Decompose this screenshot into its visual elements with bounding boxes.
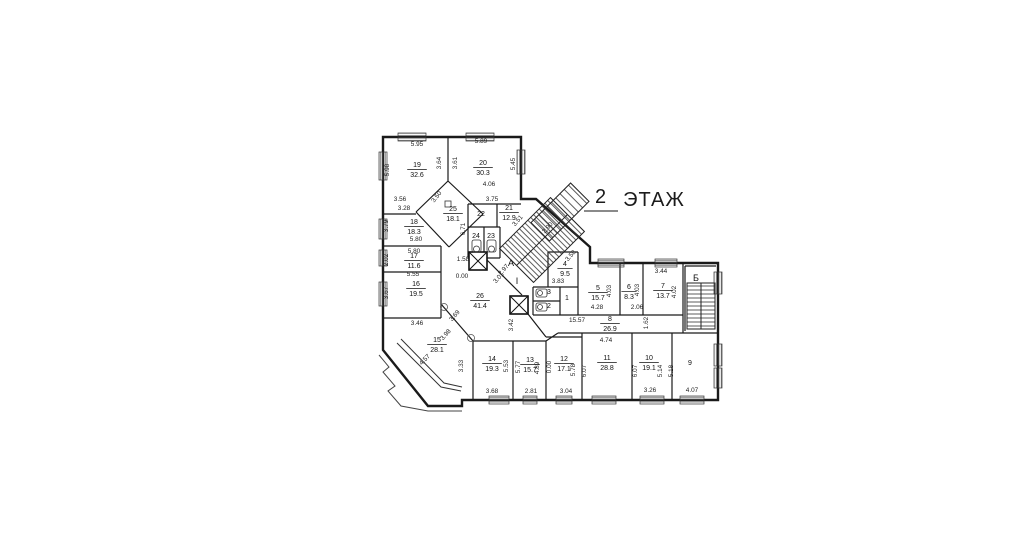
elevator-1-icon	[469, 252, 487, 270]
room-number: 13	[526, 357, 534, 364]
window-mark	[517, 150, 525, 174]
room-number: 23	[487, 233, 495, 240]
room-number: 11	[603, 355, 610, 362]
dimension-label: 15.57	[569, 317, 585, 324]
room-number: 6	[627, 284, 631, 291]
room-area: 41.4	[473, 303, 487, 310]
dimension-label: 5.80	[408, 248, 421, 255]
dimension-label: 1.62	[643, 316, 650, 329]
window-mark	[592, 396, 616, 404]
dimension-label: 4.03	[606, 284, 613, 297]
dimension-label: 4.03	[634, 283, 641, 296]
dimension-label: 5.78	[570, 363, 577, 376]
room-number: 7	[661, 283, 665, 290]
room-area: 19.1	[642, 365, 656, 372]
window-mark	[714, 368, 722, 388]
floor-plan-page: 1932.62030.32518.1222112.924231818.31711…	[0, 0, 1023, 541]
dimension-label: 3.26	[644, 387, 657, 394]
window-mark	[598, 259, 624, 267]
window-mark	[655, 259, 677, 267]
room-area: 32.6	[410, 172, 424, 179]
dimension-label: 4.28	[591, 304, 604, 311]
window-mark	[556, 396, 572, 404]
room-area: 18.1	[446, 216, 460, 223]
room-number: 19	[413, 162, 421, 169]
room-number: 25	[449, 206, 457, 213]
window-mark	[680, 396, 704, 404]
room-area: 9.5	[560, 271, 570, 278]
dimension-label: 3.56	[394, 196, 407, 203]
room-number: 24	[472, 233, 480, 240]
dimension-label: 5.80	[410, 236, 423, 243]
axis-i-label: I	[516, 276, 519, 286]
room-number: 20	[479, 160, 487, 167]
room-number: 2	[547, 303, 551, 310]
room-number: 8	[608, 316, 612, 323]
window-mark	[489, 396, 509, 404]
room-label: 2	[547, 303, 551, 310]
room-number: 9	[688, 360, 692, 367]
dimension-label: 3.83	[552, 278, 565, 285]
dimension-label: 3.44	[655, 268, 668, 275]
room-label: 3	[547, 289, 551, 296]
dimension-label: 3.33	[458, 359, 465, 372]
dimension-label: 3.75	[486, 196, 499, 203]
room-label: 1	[565, 295, 569, 302]
room-label: 22	[477, 211, 485, 218]
dimension-label: 5.53	[503, 359, 510, 372]
dimension-label: 1.58	[457, 256, 470, 263]
room-area: 19.3	[485, 366, 499, 373]
floor-title: 2 ЭТАЖ	[584, 186, 685, 212]
dimension-label: 3.68	[486, 388, 499, 395]
dimension-label: 0.00	[546, 360, 553, 373]
dimension-label: 5.55	[407, 271, 420, 278]
room-number: 10	[645, 355, 653, 362]
room-number: 18	[410, 219, 418, 226]
floor-number: 2	[584, 186, 618, 212]
room-label: 9	[688, 360, 692, 367]
dimension-label: 5.14	[657, 364, 664, 377]
dimension-label: 5.77	[515, 360, 522, 373]
window-mark	[714, 272, 722, 294]
room-number: 22	[477, 211, 485, 218]
window-mark	[640, 396, 664, 404]
dimension-label: 2.06	[631, 304, 644, 311]
room-number: 5	[596, 285, 600, 292]
room-area: 28.1	[430, 347, 444, 354]
dimension-label: 6.07	[632, 364, 639, 377]
room-number: 4	[563, 261, 567, 268]
room-label: 24	[472, 233, 480, 240]
window-mark	[523, 396, 537, 404]
dimension-label: 5.18	[668, 364, 675, 377]
room-number: 16	[412, 281, 420, 288]
dimension-label: 3.79	[383, 219, 390, 232]
room-number: 21	[505, 205, 513, 212]
elevator-2-icon	[510, 296, 528, 314]
room-area: 13.7	[656, 293, 670, 300]
room-number: 1	[565, 295, 569, 302]
dimension-label: 3.61	[452, 156, 459, 169]
dimension-label: 3.04	[560, 388, 573, 395]
room-area: 26.9	[603, 326, 617, 333]
floor-plan-drawing: 1932.62030.32518.1222112.924231818.31711…	[0, 0, 1023, 541]
floor-word: ЭТАЖ	[623, 189, 685, 212]
dimension-label: 3.46	[411, 320, 424, 327]
dimension-label: 5.95	[411, 141, 424, 148]
dimension-label: 3.67	[383, 286, 390, 299]
dimension-label: 4.07	[686, 387, 699, 394]
dimension-label: 2.81	[525, 388, 538, 395]
stairwell-b-label: Б	[693, 273, 699, 283]
dimension-label: 3.64	[436, 156, 443, 169]
dimension-label: 4.02	[671, 285, 678, 298]
dimension-label: 4.06	[483, 181, 496, 188]
dimension-label: 3.28	[398, 205, 411, 212]
dimension-label: 0.00	[456, 273, 469, 280]
room-number: 26	[476, 293, 484, 300]
dimension-label: 6.07	[581, 364, 588, 377]
dimension-label: 3.42	[508, 318, 515, 331]
room-area: 11.6	[407, 263, 420, 270]
window-mark	[714, 344, 722, 366]
dimension-label: 5.89	[475, 138, 488, 145]
room-area: 19.5	[409, 291, 423, 298]
room-number: 3	[547, 289, 551, 296]
room-area: 15.7	[591, 295, 605, 302]
window-mark	[398, 133, 426, 141]
dimension-label: 2.02	[383, 253, 390, 266]
room-area: 18.3	[407, 229, 421, 236]
room-label: 23	[487, 233, 495, 240]
room-number: 12	[560, 356, 568, 363]
dimension-label: 6.71	[460, 222, 467, 235]
stair-b-steps	[687, 283, 715, 329]
dimension-label: 4.89	[534, 361, 541, 374]
dimension-label: 5.98	[384, 163, 391, 176]
room-area: 28.8	[600, 365, 614, 372]
room-number: 14	[488, 356, 496, 363]
room-area: 17.1	[557, 366, 571, 373]
dimension-label: 4.74	[600, 337, 613, 344]
dimension-label: 5.45	[510, 157, 517, 170]
room-area: 30.3	[476, 170, 490, 177]
stairwell-a-label: А	[508, 258, 514, 268]
room-area: 8.3	[624, 294, 634, 301]
